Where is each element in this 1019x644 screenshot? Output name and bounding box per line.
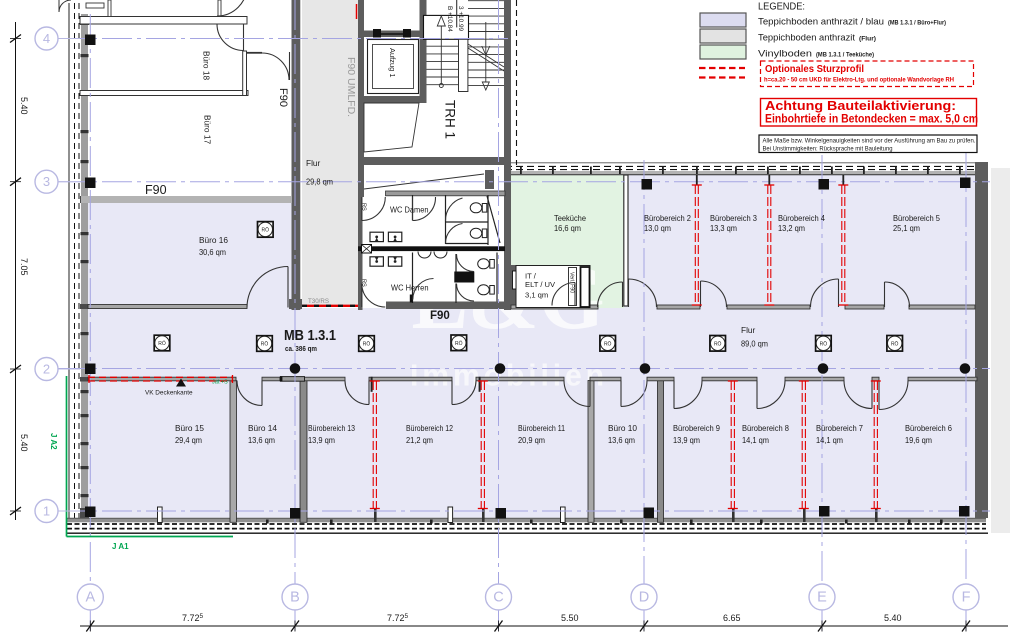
svg-text:5.50: 5.50 <box>561 613 579 623</box>
svg-text:13,6 qm: 13,6 qm <box>248 435 275 445</box>
svg-text:6.65: 6.65 <box>723 613 741 623</box>
svg-text:RÖ: RÖ <box>714 340 722 347</box>
svg-text:29,4 qm: 29,4 qm <box>175 435 202 445</box>
svg-text:Bürobereich 4: Bürobereich 4 <box>778 213 825 223</box>
svg-text:J A1: J A1 <box>112 542 129 551</box>
svg-text:RÖ: RÖ <box>455 340 463 347</box>
svg-text:13,9 qm: 13,9 qm <box>673 435 700 445</box>
svg-text:Bürobereich 5: Bürobereich 5 <box>893 213 940 223</box>
svg-text:Bürobereich 13: Bürobereich 13 <box>308 423 355 433</box>
svg-text:Bürobereich 8: Bürobereich 8 <box>742 423 789 433</box>
svg-text:LEGENDE:: LEGENDE: <box>758 2 805 13</box>
svg-text:Büro 18: Büro 18 <box>202 51 212 80</box>
svg-text:13,3 qm: 13,3 qm <box>710 223 737 233</box>
svg-text:19,6 qm: 19,6 qm <box>905 435 932 445</box>
svg-text:ELT / UV: ELT / UV <box>525 280 556 289</box>
svg-text:Jal.+S: Jal.+S <box>212 380 228 386</box>
svg-text:3,1 qm: 3,1 qm <box>525 291 548 300</box>
svg-text:TRH 1: TRH 1 <box>443 100 458 139</box>
svg-text:5.40: 5.40 <box>884 613 902 623</box>
svg-text:Immobilien: Immobilien <box>410 358 608 393</box>
svg-text:7.05: 7.05 <box>19 258 29 276</box>
svg-text:Bürobereich 2: Bürobereich 2 <box>644 213 691 223</box>
svg-text:Teppichboden anthrazit / blau: Teppichboden anthrazit / blau <box>758 17 884 28</box>
svg-text:MB 1.3.1: MB 1.3.1 <box>284 328 336 344</box>
svg-text:1: 1 <box>43 504 50 519</box>
svg-text:13,0 qm: 13,0 qm <box>644 223 671 233</box>
svg-text:29,8 qm: 29,8 qm <box>306 177 333 187</box>
svg-text:C: C <box>493 590 503 606</box>
svg-text:VK Deckenkante: VK Deckenkante <box>145 390 193 397</box>
svg-text:Vinylboden: Vinylboden <box>758 49 812 60</box>
svg-text:14,1 qm: 14,1 qm <box>816 435 843 445</box>
svg-text:25,1 qm: 25,1 qm <box>893 223 920 233</box>
svg-text:20,9 qm: 20,9 qm <box>518 435 545 445</box>
svg-text:D: D <box>639 590 649 606</box>
svg-text:5.40: 5.40 <box>19 434 29 452</box>
svg-text:RÖ: RÖ <box>262 226 270 233</box>
svg-text:Aufzug 1: Aufzug 1 <box>388 48 397 78</box>
svg-text:13,9 qm: 13,9 qm <box>308 435 335 445</box>
svg-text:3: 3 <box>43 174 50 189</box>
svg-text:Bürobereich 7: Bürobereich 7 <box>816 423 863 433</box>
svg-text:RS: RS <box>361 279 367 287</box>
svg-text:Bürobereich 9: Bürobereich 9 <box>673 423 720 433</box>
svg-text:Bürobereich 6: Bürobereich 6 <box>905 423 952 433</box>
svg-text:WC Herren: WC Herren <box>391 283 429 293</box>
svg-text:Büro 10: Büro 10 <box>608 423 637 433</box>
svg-text:Achtung Bauteilaktivierung:: Achtung Bauteilaktivierung: <box>765 99 956 113</box>
svg-text:Bürobereich 3: Bürobereich 3 <box>710 213 757 223</box>
svg-text:RÖ: RÖ <box>891 340 899 347</box>
svg-text:16,6 qm: 16,6 qm <box>554 223 581 233</box>
svg-text:F90: F90 <box>277 88 289 107</box>
svg-text:89,0 qm: 89,0 qm <box>741 339 768 349</box>
svg-text:30,6 qm: 30,6 qm <box>199 247 226 257</box>
svg-text:RS: RS <box>361 203 367 211</box>
svg-text:Büro 16: Büro 16 <box>199 235 228 245</box>
svg-text:5.40: 5.40 <box>19 97 29 115</box>
svg-text:F90: F90 <box>430 310 450 322</box>
svg-text:Teeküche: Teeküche <box>554 213 586 223</box>
svg-text:Büro 14: Büro 14 <box>248 423 277 433</box>
svg-text:3 +10.99: 3 +10.99 <box>457 6 464 31</box>
svg-text:WC Damen: WC Damen <box>390 205 429 215</box>
svg-text:Flur: Flur <box>741 325 756 335</box>
svg-text:T30/RS: T30/RS <box>308 298 329 305</box>
svg-text:RÖ: RÖ <box>820 340 828 347</box>
svg-text:RÖ: RÖ <box>604 340 612 347</box>
svg-text:Büro 15: Büro 15 <box>175 423 204 433</box>
svg-text:Teppichboden anthrazit: Teppichboden anthrazit <box>758 33 855 44</box>
svg-text:4: 4 <box>43 31 50 46</box>
svg-text:Alle Maße bzw. Winkelgenauigke: Alle Maße bzw. Winkelgenauigkeiten sind … <box>763 138 976 145</box>
svg-text:(Flur): (Flur) <box>859 36 876 43</box>
svg-text:ca. 386 qm: ca. 386 qm <box>285 346 317 353</box>
svg-text:Bürobereich 11: Bürobereich 11 <box>518 423 565 433</box>
svg-text:Einbohrtiefe in Betondecken =: Einbohrtiefe in Betondecken = max. 5,0 c… <box>765 114 978 126</box>
svg-text:14,1 qm: 14,1 qm <box>742 435 769 445</box>
svg-text:Bürobereich 12: Bürobereich 12 <box>406 423 453 433</box>
svg-text:(MB 1.3.1 / Büro+Flur): (MB 1.3.1 / Büro+Flur) <box>888 20 946 27</box>
svg-text:h=ca.20 - 50 cm UKD für Elektr: h=ca.20 - 50 cm UKD für Elektro-Ltg. und… <box>764 77 954 84</box>
svg-text:E: E <box>817 590 827 606</box>
svg-text:RÖ: RÖ <box>363 341 371 348</box>
svg-text:RÖ: RÖ <box>261 341 269 348</box>
svg-text:J A2: J A2 <box>49 433 58 450</box>
svg-text:13,2 qm: 13,2 qm <box>778 223 805 233</box>
svg-text:Büro 17: Büro 17 <box>203 115 213 144</box>
svg-text:A: A <box>85 590 95 606</box>
svg-text:2: 2 <box>43 362 50 377</box>
svg-text:Flur: Flur <box>306 158 321 168</box>
svg-text:F: F <box>962 590 971 606</box>
svg-text:Bei Unstimmigkeiten: Rücksprac: Bei Unstimmigkeiten: Rücksprache mit Bau… <box>763 146 893 153</box>
svg-text:F90: F90 <box>145 183 167 197</box>
svg-text:RÖ: RÖ <box>158 340 166 347</box>
svg-text:13,6 qm: 13,6 qm <box>608 435 635 445</box>
svg-text:Optionales Sturzprofil: Optionales Sturzprofil <box>765 63 864 75</box>
svg-text:F90 UMLFD.: F90 UMLFD. <box>345 57 357 117</box>
svg-text:21,2 qm: 21,2 qm <box>406 435 433 445</box>
svg-text:B +10.84: B +10.84 <box>446 6 453 32</box>
svg-text:B: B <box>290 590 300 606</box>
svg-text:(MB 1.3.1 / Teeküche): (MB 1.3.1 / Teeküche) <box>816 52 874 59</box>
